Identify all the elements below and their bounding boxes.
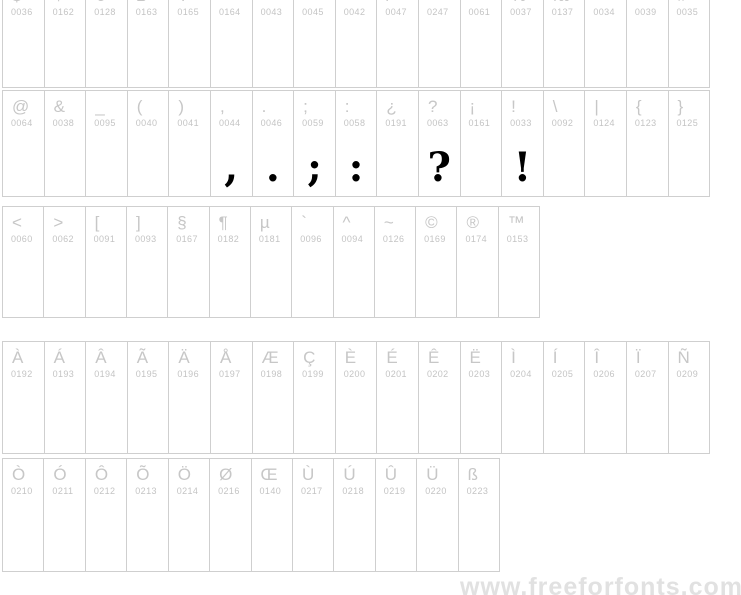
reference-char: Œ [261, 466, 278, 484]
char-code: 0033 [510, 118, 532, 128]
char-code: 0209 [677, 369, 699, 379]
reference-char: Ë [470, 349, 481, 367]
char-code: 0182 [218, 234, 240, 244]
reference-char: Î [594, 349, 599, 367]
char-code: 0044 [219, 118, 241, 128]
reference-char: ) [178, 98, 184, 116]
reference-char: / [386, 0, 391, 5]
reference-char: Ö [178, 466, 191, 484]
char-cell: *0042 [336, 0, 378, 87]
char-code: 0181 [259, 234, 281, 244]
char-code: 0196 [177, 369, 199, 379]
char-code: 0035 [677, 7, 699, 17]
char-code: 0205 [552, 369, 574, 379]
reference-char: Ñ [678, 349, 690, 367]
rendered-font-glyph: ; [294, 148, 335, 188]
char-cell: Ã0195 [128, 342, 170, 453]
reference-char: ? [428, 98, 437, 116]
reference-char: Æ [262, 349, 279, 367]
reference-char: ~ [384, 214, 394, 232]
reference-char: $ [12, 0, 21, 5]
reference-char: Ì [511, 349, 516, 367]
char-cell: ÷0247 [419, 0, 461, 87]
char-table-accented-a-n: À0192Á0193Â0194Ã0195Ä0196Å0197Æ0198Ç0199… [2, 341, 710, 454]
char-code: 0219 [384, 486, 406, 496]
char-code: 0247 [427, 7, 449, 17]
reference-char: É [386, 349, 397, 367]
char-cell: ¥0165 [169, 0, 211, 87]
reference-char: Ó [53, 466, 66, 484]
char-code: 0043 [261, 7, 283, 17]
char-cell: ß0223 [459, 459, 499, 571]
reference-char: Á [54, 349, 65, 367]
char-cell: ¿0191 [377, 91, 419, 196]
char-code: 0207 [635, 369, 657, 379]
reference-char: Û [385, 466, 397, 484]
rendered-font-glyph: : [336, 148, 377, 188]
char-cell: >0062 [44, 207, 85, 317]
char-cell: /0047 [377, 0, 419, 87]
char-cell: Ï0207 [627, 342, 669, 453]
reference-char: - [303, 0, 309, 5]
reference-char: Í [553, 349, 558, 367]
char-code: 0038 [53, 118, 75, 128]
reference-char: ^ [343, 214, 351, 232]
reference-char: Ò [12, 466, 25, 484]
char-code: 0128 [94, 7, 116, 17]
reference-char: ® [466, 214, 479, 232]
char-code: 0217 [301, 486, 323, 496]
char-cell: ,0044, [211, 91, 253, 196]
char-code: 0096 [300, 234, 322, 244]
char-code: 0047 [385, 7, 407, 17]
char-code: 0036 [11, 7, 33, 17]
char-code: 0220 [425, 486, 447, 496]
char-cell: Ô0212 [86, 459, 127, 571]
char-code: 0058 [344, 118, 366, 128]
char-cell: À0192 [3, 342, 45, 453]
char-code: 0218 [342, 486, 364, 496]
char-cell: Ñ0209 [669, 342, 710, 453]
char-cell: )0041 [169, 91, 211, 196]
char-code: 0164 [219, 7, 241, 17]
char-code: 0213 [135, 486, 157, 496]
reference-char: § [177, 214, 186, 232]
char-cell: #0035 [669, 0, 710, 87]
reference-char: Ø [219, 466, 232, 484]
char-cell: ;0059; [294, 91, 336, 196]
reference-char: ( [137, 98, 143, 116]
char-cell: ¤0164 [211, 0, 253, 87]
reference-char: < [12, 214, 22, 232]
char-cell: [0091 [86, 207, 127, 317]
char-cell: }0125 [669, 91, 710, 196]
reference-char: È [345, 349, 356, 367]
char-cell: .0046. [253, 91, 295, 196]
reference-char: @ [12, 98, 29, 116]
char-cell: Ò0210 [3, 459, 44, 571]
char-cell: ^0094 [334, 207, 375, 317]
font-character-map-page: $0036¢0162€0128£0163¥0165¤0164+0043-0045… [0, 0, 741, 595]
char-code: 0062 [52, 234, 74, 244]
reference-char: ¥ [178, 0, 187, 5]
char-table-punctuation: @0064&0038_0095(0040)0041,0044,.0046.;00… [2, 90, 710, 197]
char-cell: "0034 [585, 0, 627, 87]
char-cell: -0045 [294, 0, 336, 87]
char-code: 0063 [427, 118, 449, 128]
char-code: 0210 [11, 486, 33, 496]
reference-char: Ç [303, 349, 315, 367]
char-code: 0042 [344, 7, 366, 17]
char-cell: @0064 [3, 91, 45, 196]
reference-char: ™ [508, 214, 525, 232]
char-cell: µ0181 [251, 207, 292, 317]
reference-char: ' [636, 0, 639, 5]
char-cell: Â0194 [86, 342, 128, 453]
char-cell: Û0219 [376, 459, 417, 571]
char-cell: Ì0204 [502, 342, 544, 453]
reference-char: > [53, 214, 63, 232]
char-cell: €0128 [86, 0, 128, 87]
char-cell: Õ0213 [127, 459, 168, 571]
char-code: 0163 [136, 7, 158, 17]
rendered-font-glyph: ! [502, 148, 543, 188]
char-cell: Ê0202 [419, 342, 461, 453]
reference-char: , [220, 98, 225, 116]
reference-char: \ [553, 98, 558, 116]
char-code: 0202 [427, 369, 449, 379]
reference-char: ` [301, 214, 307, 232]
reference-char: ¡ [470, 98, 476, 116]
char-cell: {0123 [627, 91, 669, 196]
char-cell: Ç0199 [294, 342, 336, 453]
reference-char: & [54, 98, 65, 116]
reference-char: Â [95, 349, 106, 367]
char-cell: ¶0182 [210, 207, 251, 317]
char-code: 0204 [510, 369, 532, 379]
reference-char: { [636, 98, 642, 116]
reference-char: . [262, 98, 267, 116]
char-code: 0161 [469, 118, 491, 128]
char-code: 0061 [469, 7, 491, 17]
reference-char: Å [220, 349, 231, 367]
char-code: 0125 [677, 118, 699, 128]
char-cell: `0096 [292, 207, 333, 317]
reference-char: # [678, 0, 687, 5]
reference-char: ] [136, 214, 141, 232]
reference-char: À [12, 349, 23, 367]
reference-char: [ [95, 214, 100, 232]
reference-char: } [678, 98, 684, 116]
char-code: 0039 [635, 7, 657, 17]
reference-char: Ï [636, 349, 641, 367]
reference-char: © [425, 214, 438, 232]
char-code: 0162 [53, 7, 75, 17]
char-code: 0194 [94, 369, 116, 379]
char-cell: =0061 [461, 0, 503, 87]
char-code: 0198 [261, 369, 283, 379]
char-cell: _0095 [86, 91, 128, 196]
char-code: 0123 [635, 118, 657, 128]
reference-char: " [594, 0, 600, 5]
char-cell: |0124 [585, 91, 627, 196]
char-code: 0223 [467, 486, 489, 496]
reference-char: Ù [302, 466, 314, 484]
char-cell: \0092 [544, 91, 586, 196]
char-code: 0040 [136, 118, 158, 128]
reference-char: Ä [178, 349, 189, 367]
char-code: 0193 [53, 369, 75, 379]
char-code: 0206 [593, 369, 615, 379]
char-cell: Ú0218 [334, 459, 375, 571]
char-cell: Ë0203 [461, 342, 503, 453]
char-cell: Æ0198 [253, 342, 295, 453]
reference-char: € [95, 0, 104, 5]
char-code: 0060 [11, 234, 33, 244]
reference-char: ß [468, 466, 478, 484]
char-cell: ?0063? [419, 91, 461, 196]
reference-char: Ê [428, 349, 439, 367]
char-cell: (0040 [128, 91, 170, 196]
char-cell: ™0153 [499, 207, 539, 317]
char-code: 0200 [344, 369, 366, 379]
char-code: 0126 [383, 234, 405, 244]
reference-char: Ú [343, 466, 355, 484]
char-cell: Î0206 [585, 342, 627, 453]
reference-char: ¿ [386, 98, 396, 116]
reference-char: Õ [136, 466, 149, 484]
char-cell: Ö0214 [169, 459, 210, 571]
char-cell: §0167 [168, 207, 209, 317]
char-code: 0140 [260, 486, 282, 496]
reference-char: £ [137, 0, 146, 5]
char-code: 0197 [219, 369, 241, 379]
rendered-font-glyph: . [253, 148, 294, 188]
char-cell: '0039 [627, 0, 669, 87]
char-cell: $0036 [3, 0, 45, 87]
char-cell: +0043 [253, 0, 295, 87]
reference-char: Ô [95, 466, 108, 484]
char-code: 0201 [385, 369, 407, 379]
char-code: 0094 [342, 234, 364, 244]
char-code: 0037 [510, 7, 532, 17]
reference-char: _ [95, 98, 104, 116]
char-code: 0045 [302, 7, 324, 17]
reference-char: * [345, 0, 352, 5]
char-table-accented-o-ss: Ò0210Ó0211Ô0212Õ0213Ö0214Ø0216Œ0140Ù0217… [2, 458, 500, 572]
reference-char: = [470, 0, 480, 5]
char-cell: Ä0196 [169, 342, 211, 453]
char-code: 0165 [177, 7, 199, 17]
char-code: 0211 [52, 486, 73, 496]
char-code: 0216 [218, 486, 240, 496]
char-code: 0212 [94, 486, 116, 496]
reference-char: ! [511, 98, 516, 116]
char-cell: £0163 [128, 0, 170, 87]
char-cell: Í0205 [544, 342, 586, 453]
char-code: 0192 [11, 369, 33, 379]
char-cell: È0200 [336, 342, 378, 453]
reference-char: ¶ [219, 214, 228, 232]
site-watermark: www.freeforfonts.com [460, 573, 741, 595]
char-code: 0153 [507, 234, 529, 244]
reference-char: | [594, 98, 598, 116]
char-code: 0095 [94, 118, 116, 128]
char-cell: Ù0217 [293, 459, 334, 571]
char-cell: Ø0216 [210, 459, 251, 571]
reference-char: Ü [426, 466, 438, 484]
char-cell: <0060 [3, 207, 44, 317]
char-cell: Å0197 [211, 342, 253, 453]
reference-char: % [511, 0, 526, 5]
char-code: 0034 [593, 7, 615, 17]
reference-char: ÷ [428, 0, 437, 5]
char-table-special-symbols: <0060>0062[0091]0093§0167¶0182µ0181`0096… [2, 206, 540, 318]
char-code: 0092 [552, 118, 574, 128]
char-code: 0167 [176, 234, 198, 244]
char-cell: ©0169 [416, 207, 457, 317]
char-code: 0059 [302, 118, 324, 128]
char-cell: ~0126 [375, 207, 416, 317]
char-cell: :0058: [336, 91, 378, 196]
char-code: 0041 [177, 118, 199, 128]
reference-char: ; [303, 98, 308, 116]
char-code: 0199 [302, 369, 324, 379]
char-code: 0174 [465, 234, 487, 244]
char-code: 0214 [177, 486, 199, 496]
char-code: 0137 [552, 7, 574, 17]
char-cell: Ü0220 [417, 459, 458, 571]
reference-char: ‰ [553, 0, 570, 5]
reference-char: ¤ [220, 0, 229, 5]
reference-char: : [345, 98, 350, 116]
char-cell: Ó0211 [44, 459, 85, 571]
char-code: 0091 [94, 234, 116, 244]
char-code: 0124 [593, 118, 615, 128]
rendered-font-glyph: , [211, 148, 252, 188]
reference-char: µ [260, 214, 270, 232]
char-code: 0064 [11, 118, 33, 128]
char-code: 0195 [136, 369, 158, 379]
reference-char: + [262, 0, 272, 5]
char-cell: ®0174 [457, 207, 498, 317]
char-cell: Á0193 [45, 342, 87, 453]
char-cell: &0038 [45, 91, 87, 196]
char-cell: ‰0137 [544, 0, 586, 87]
char-cell: !0033! [502, 91, 544, 196]
rendered-font-glyph: ? [419, 148, 460, 188]
char-cell: ]0093 [127, 207, 168, 317]
char-cell: ¡0161 [461, 91, 503, 196]
char-cell: %0037 [502, 0, 544, 87]
char-code: 0046 [261, 118, 283, 128]
reference-char: ¢ [54, 0, 63, 5]
reference-char: Ã [137, 349, 148, 367]
char-cell: Œ0140 [252, 459, 293, 571]
char-code: 0191 [385, 118, 407, 128]
char-code: 0169 [424, 234, 446, 244]
char-cell: É0201 [377, 342, 419, 453]
char-cell: ¢0162 [45, 0, 87, 87]
char-table-currency-math: $0036¢0162€0128£0163¥0165¤0164+0043-0045… [2, 0, 710, 88]
char-code: 0093 [135, 234, 157, 244]
char-code: 0203 [469, 369, 491, 379]
